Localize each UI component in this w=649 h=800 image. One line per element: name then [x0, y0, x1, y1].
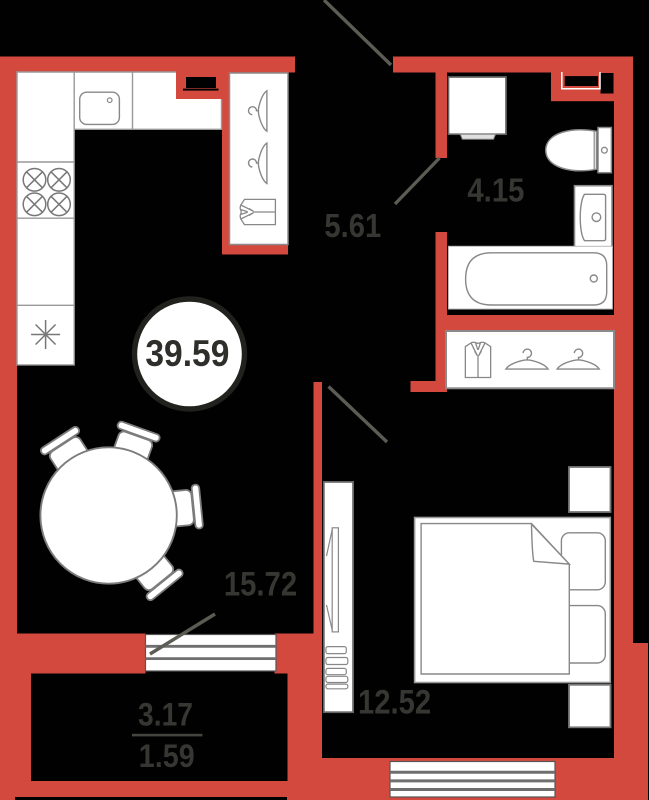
svg-text:15.72: 15.72 — [224, 565, 297, 603]
svg-text:3.17: 3.17 — [138, 696, 193, 733]
svg-text:1.59: 1.59 — [139, 737, 195, 774]
svg-text:5.61: 5.61 — [324, 208, 381, 245]
svg-text:4.15: 4.15 — [467, 172, 524, 209]
svg-text:12.52: 12.52 — [358, 684, 431, 722]
svg-text:39.59: 39.59 — [145, 332, 229, 374]
